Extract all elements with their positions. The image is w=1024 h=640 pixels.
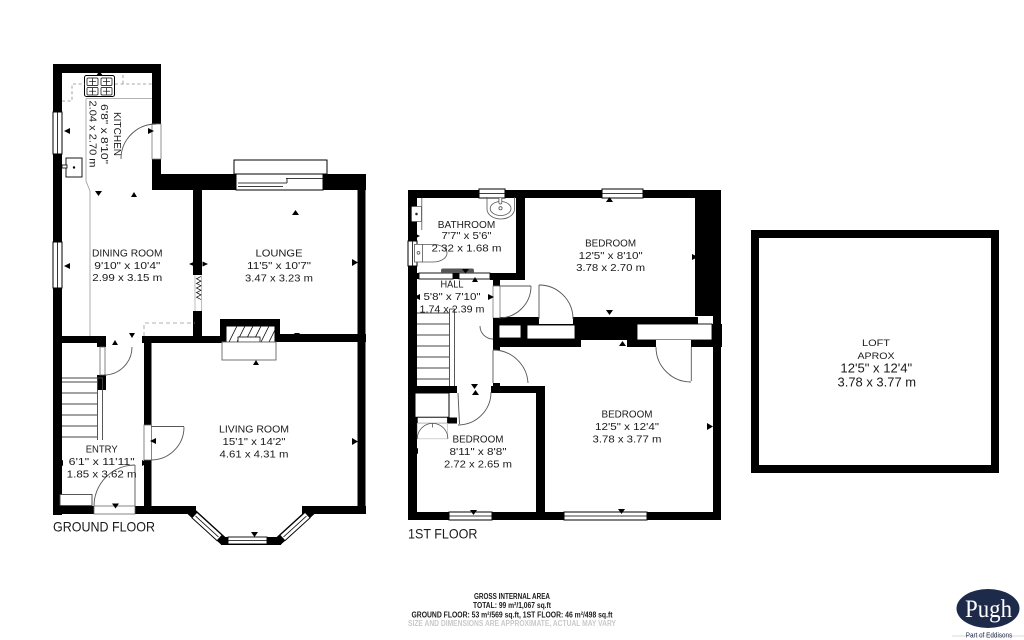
- svg-text:KITCHEN: KITCHEN: [111, 112, 123, 156]
- svg-text:5'8" x 7'10": 5'8" x 7'10": [424, 291, 481, 303]
- svg-text:HALL: HALL: [441, 279, 464, 291]
- svg-text:4.61 x 4.31 m: 4.61 x 4.31 m: [220, 448, 289, 460]
- svg-text:2.72 x 2.65 m: 2.72 x 2.65 m: [444, 458, 512, 470]
- svg-text:12'5" x 8'10": 12'5" x 8'10": [579, 250, 643, 262]
- svg-text:11'5" x 10'7": 11'5" x 10'7": [247, 260, 311, 272]
- svg-text:GROUND FLOOR: 53 m²/569 sq.ft,: GROUND FLOOR: 53 m²/569 sq.ft, 1ST FLOOR…: [412, 610, 613, 619]
- svg-text:3.78 x 3.77 m: 3.78 x 3.77 m: [838, 374, 917, 389]
- svg-text:Part of Eddisons: Part of Eddisons: [966, 631, 1013, 640]
- svg-text:2.32 x 1.68 m: 2.32 x 1.68 m: [432, 242, 502, 254]
- svg-text:TOTAL: 99 m²/1,067 sq.ft: TOTAL: 99 m²/1,067 sq.ft: [473, 601, 551, 610]
- svg-text:3.47 x 3.23 m: 3.47 x 3.23 m: [245, 272, 313, 284]
- svg-text:BEDROOM: BEDROOM: [453, 434, 504, 446]
- svg-text:1ST FLOOR: 1ST FLOOR: [408, 526, 478, 542]
- svg-text:9'10" x 10'4": 9'10" x 10'4": [94, 260, 160, 272]
- svg-text:7'7" x 5'6": 7'7" x 5'6": [442, 230, 492, 242]
- svg-text:6'8" x 8'10": 6'8" x 8'10": [98, 104, 110, 164]
- svg-text:BEDROOM: BEDROOM: [602, 409, 653, 421]
- svg-text:GROUND FLOOR: GROUND FLOOR: [53, 519, 155, 535]
- svg-text:GROSS INTERNAL AREA: GROSS INTERNAL AREA: [474, 592, 550, 601]
- svg-text:Pugh: Pugh: [965, 596, 1012, 623]
- svg-text:1.74 x 2.39 m: 1.74 x 2.39 m: [420, 303, 485, 315]
- svg-text:BEDROOM: BEDROOM: [585, 237, 636, 249]
- svg-text:6'1" x 11'11": 6'1" x 11'11": [69, 456, 135, 468]
- svg-text:SIZE AND DIMENSIONS ARE APPROX: SIZE AND DIMENSIONS ARE APPROXIMATE, ACT…: [408, 619, 617, 628]
- svg-text:3.78 x 3.77 m: 3.78 x 3.77 m: [593, 433, 662, 445]
- svg-text:8'11" x 8'8": 8'11" x 8'8": [450, 446, 507, 458]
- svg-text:12'5" x 12'4": 12'5" x 12'4": [595, 421, 659, 433]
- svg-text:2.99 x 3.15 m: 2.99 x 3.15 m: [92, 272, 162, 284]
- svg-text:LOFT: LOFT: [862, 338, 890, 349]
- svg-text:3.78 x 2.70 m: 3.78 x 2.70 m: [576, 262, 645, 274]
- svg-text:LOUNGE: LOUNGE: [256, 248, 303, 260]
- svg-text:DINING ROOM: DINING ROOM: [92, 247, 163, 259]
- svg-text:LIVING ROOM: LIVING ROOM: [219, 424, 289, 436]
- svg-text:15'1" x 14'2": 15'1" x 14'2": [223, 436, 286, 448]
- svg-text:BATHROOM: BATHROOM: [438, 219, 496, 231]
- svg-text:2.04 x 2.70 m: 2.04 x 2.70 m: [87, 101, 99, 168]
- svg-text:1.85 x 3.62 m: 1.85 x 3.62 m: [67, 468, 137, 480]
- svg-text:ENTRY: ENTRY: [86, 444, 118, 456]
